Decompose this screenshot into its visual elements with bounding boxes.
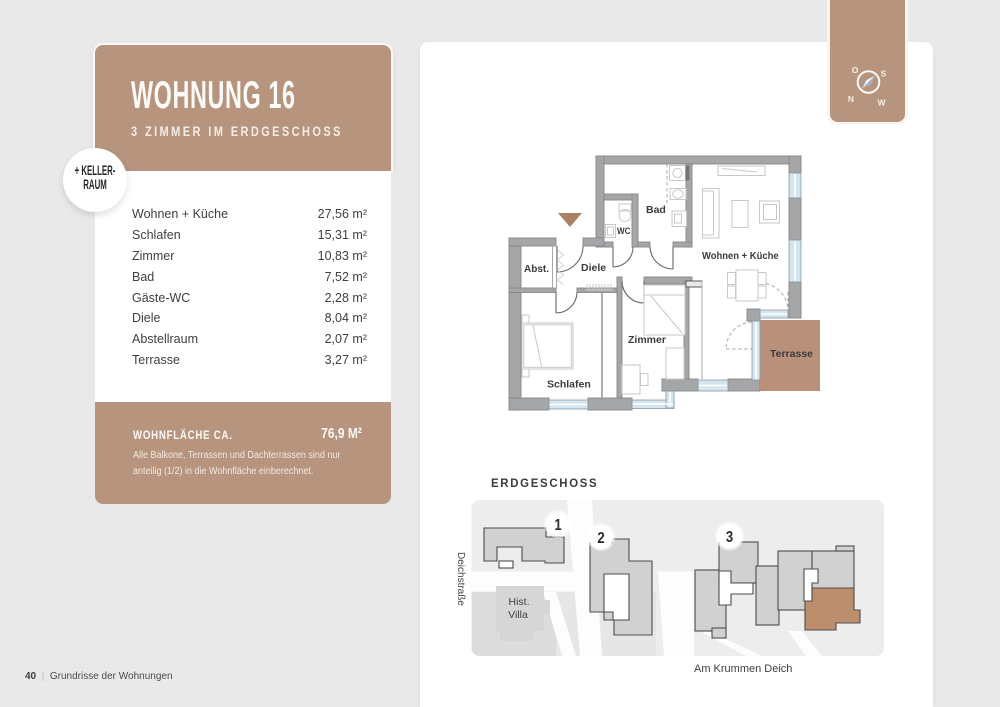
svg-text:Villa: Villa bbox=[508, 609, 528, 621]
svg-text:WC: WC bbox=[617, 225, 631, 236]
svg-text:3: 3 bbox=[726, 529, 733, 546]
svg-text:ERDGESCHOSS: ERDGESCHOSS bbox=[491, 477, 598, 490]
svg-text:Wohnen + Küche: Wohnen + Küche bbox=[702, 251, 779, 263]
svg-text:Schlafen: Schlafen bbox=[547, 379, 591, 391]
svg-text:Am Krummen Deich: Am Krummen Deich bbox=[694, 663, 792, 675]
svg-text:Deichstraße: Deichstraße bbox=[455, 552, 466, 606]
svg-text:1: 1 bbox=[554, 517, 561, 534]
svg-text:Zimmer: Zimmer bbox=[628, 334, 666, 346]
svg-text:Terrasse: Terrasse bbox=[770, 348, 813, 360]
svg-text:Diele: Diele bbox=[581, 262, 606, 274]
svg-text:2: 2 bbox=[597, 530, 604, 547]
svg-text:Hist.: Hist. bbox=[509, 596, 530, 608]
svg-text:Bad: Bad bbox=[646, 204, 666, 216]
svg-text:Abst.: Abst. bbox=[524, 264, 549, 275]
